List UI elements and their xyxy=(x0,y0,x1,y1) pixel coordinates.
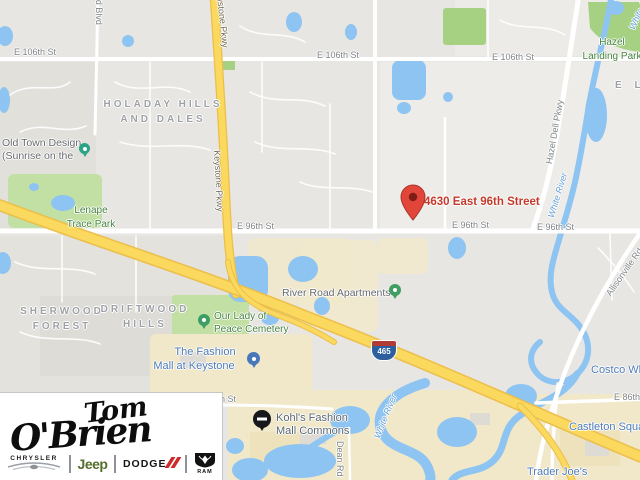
shield-route-number: 465 xyxy=(372,346,396,358)
street-label-e106-right: E 106th St xyxy=(492,52,534,62)
old-town-pin-icon[interactable] xyxy=(79,143,90,154)
kohls-pin-icon[interactable] xyxy=(253,410,271,428)
area-label-el-partial: E L xyxy=(615,80,640,91)
street-label-e96-right: E 96th St xyxy=(537,222,574,232)
mall-pin-icon[interactable] xyxy=(247,352,260,365)
road-label-dean: Dean Rd xyxy=(335,441,345,477)
poi-label-fashion-mall-2: Mall at Keystone xyxy=(153,360,234,372)
dodge-slashes-icon xyxy=(166,455,178,473)
chrysler-wing-icon xyxy=(6,462,62,472)
dodge-logo: DODGE xyxy=(123,455,179,473)
poi-label-river-road-apartments: River Road Apartments xyxy=(282,287,391,299)
park-label-cemetery-1: Our Lady of xyxy=(214,311,266,322)
area-label-sherwood-1: SHERWOOD xyxy=(20,306,104,317)
park-label-cemetery-2: Peace Cemetery xyxy=(214,324,288,335)
poi-label-kohls-2: Mall Commons xyxy=(276,425,349,437)
ram-head-icon xyxy=(194,452,216,468)
jeep-wordmark: Jeep xyxy=(78,456,108,472)
poi-label-trader-joes: Trader Joe's xyxy=(527,466,587,478)
park-label-lenape-1: Lenape xyxy=(74,205,107,216)
area-label-sherwood-2: FOREST xyxy=(33,321,92,332)
chrysler-wordmark: CHRYSLER xyxy=(10,455,58,462)
street-label-e106-mid: E 106th St xyxy=(317,50,359,60)
brand-logos-row: CHRYSLER Jeep DODGE xyxy=(4,452,218,475)
cemetery-pin-icon[interactable] xyxy=(198,314,210,326)
poi-label-castleton-square: Castleton Square xyxy=(569,421,640,433)
brand-divider xyxy=(114,455,116,473)
park-label-hazel-landing-2: Landing Park xyxy=(583,51,640,62)
area-label-driftwood-2: HILLS xyxy=(123,319,167,330)
road-label-westfield: Westfield Blvd xyxy=(94,0,104,25)
park-label-lenape-2: Trace Park xyxy=(67,219,116,230)
interstate-465-shield: 465 xyxy=(371,340,397,361)
apartments-pin-icon[interactable] xyxy=(389,284,401,296)
ram-logo: RAM xyxy=(194,452,216,475)
dodge-wordmark: DODGE xyxy=(123,458,167,470)
poi-label-old-town-2: (Sunrise on the xyxy=(2,150,73,162)
brand-divider xyxy=(185,455,187,473)
area-label-holaday-1: HOLADAY HILLS xyxy=(103,99,222,110)
area-label-holaday-2: AND DALES xyxy=(120,114,205,125)
dealer-logo: Tom O'Brien CHRYSLER Jeep DODGE xyxy=(0,392,223,480)
poi-label-fashion-mall-1: The Fashion xyxy=(174,346,235,358)
street-label-e96-left: E 96th St xyxy=(237,221,274,231)
marker-address-label: 4630 East 96th Street xyxy=(424,196,540,208)
poi-label-kohls-1: Kohl's Fashion xyxy=(276,412,348,424)
poi-label-costco: Costco Wholesale xyxy=(591,364,640,376)
ram-wordmark: RAM xyxy=(197,469,213,475)
brand-divider xyxy=(69,455,71,473)
chrysler-logo: CHRYSLER xyxy=(6,455,62,472)
street-label-e86-right: E 86th St xyxy=(614,392,640,402)
street-label-e106-left: E 106th St xyxy=(14,47,56,57)
area-label-driftwood-1: DRIFTWOOD xyxy=(101,304,190,315)
map-canvas[interactable]: E 106th St E 106th St E 106th St E 96th … xyxy=(0,0,640,480)
poi-label-old-town-1: Old Town Design xyxy=(2,137,81,149)
location-marker-icon[interactable] xyxy=(400,184,426,227)
street-label-e96-mid: E 96th St xyxy=(452,220,489,230)
park-label-hazel-landing-1: Hazel xyxy=(599,37,625,48)
